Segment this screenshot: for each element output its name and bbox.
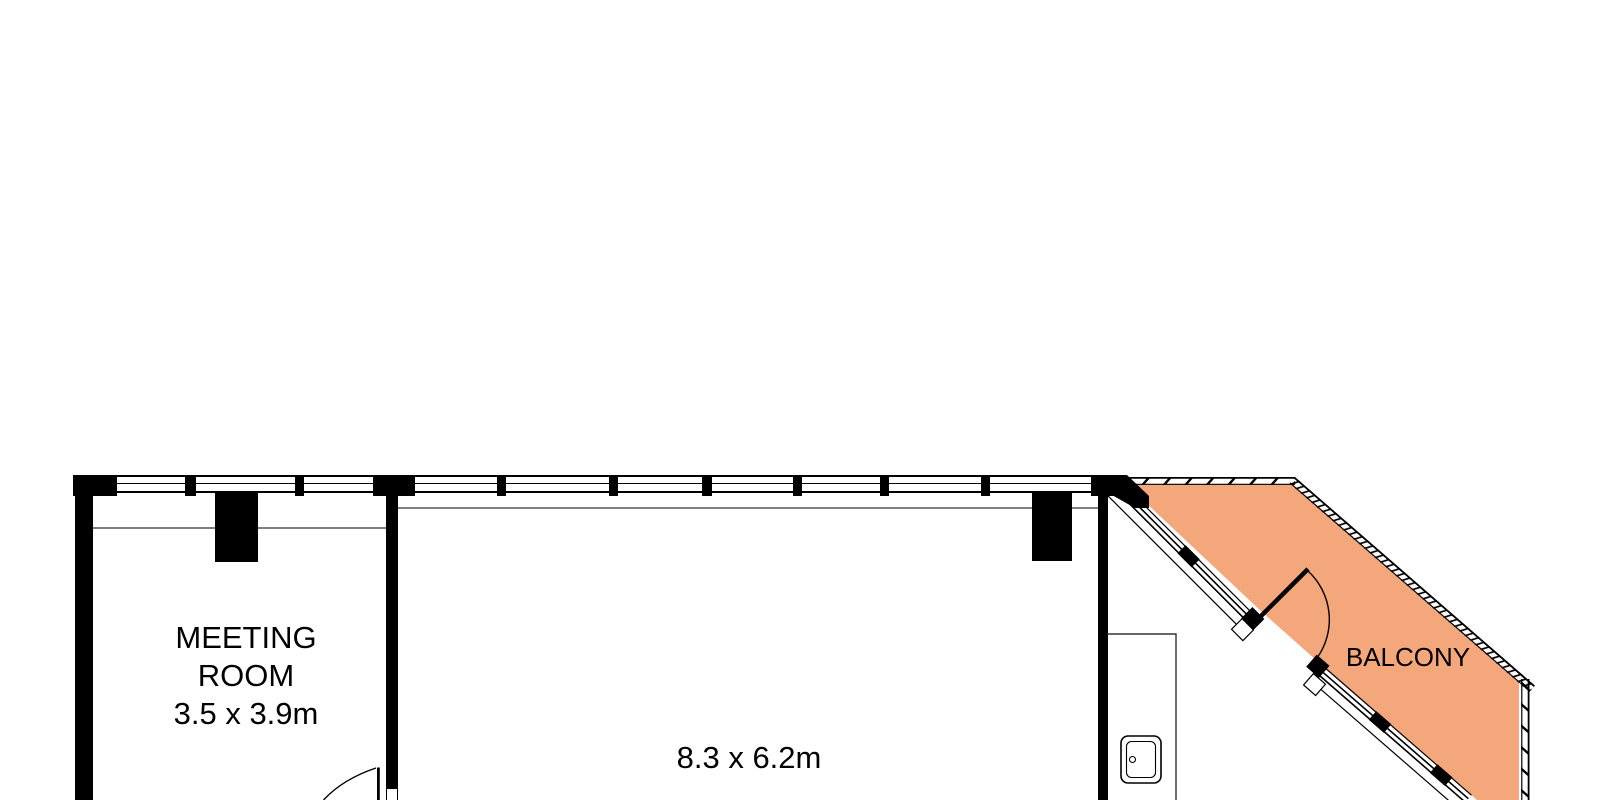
meeting-room-dimensions: 3.5 x 3.9m	[96, 695, 396, 733]
main-room-dimensions: 8.3 x 6.2m	[599, 739, 899, 777]
meeting-room-label: MEETING ROOM	[96, 619, 396, 695]
meeting-room-door-swing-arc	[324, 768, 377, 800]
floor-plan-canvas: MEETING ROOM 3.5 x 3.9m 8.3 x 6.2m BALCO…	[0, 0, 1600, 800]
balcony-label: BALCONY	[1283, 642, 1533, 672]
sink-tap-hole	[1130, 757, 1136, 763]
balcony-railing-top	[1117, 477, 1295, 485]
sink	[1121, 736, 1161, 783]
balcony-railing-right	[1521, 679, 1530, 800]
